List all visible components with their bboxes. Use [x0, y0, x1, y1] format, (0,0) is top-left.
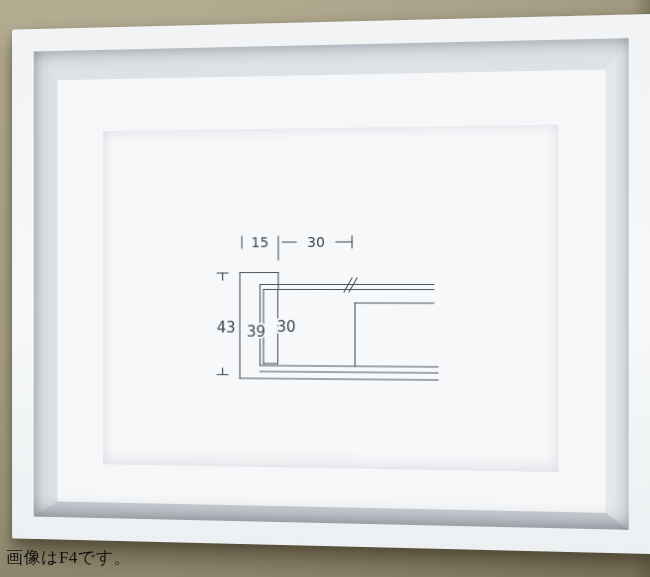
moulding-profile-outline [240, 272, 438, 380]
cross-section-diagram: 15 30 43 39 30 [197, 224, 451, 406]
product-photo: 15 30 43 39 30 画像はF4です。 [0, 0, 650, 577]
dim-label-side-30: 30 [277, 318, 296, 335]
caption-text: 画像はF4です。 [6, 547, 131, 569]
dim-label-top-30: 30 [307, 234, 325, 250]
dim-label-top-15: 15 [251, 234, 269, 250]
white-box-frame: 15 30 43 39 30 [12, 14, 650, 554]
dim-label-side-43: 43 [217, 319, 236, 336]
dim-label-side-39: 39 [247, 322, 266, 339]
